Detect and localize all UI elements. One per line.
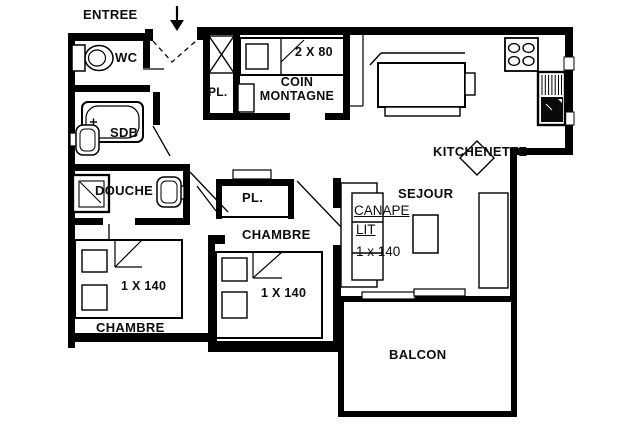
label-lit: LIT xyxy=(356,223,376,237)
label-coin-montagne-line1: COIN xyxy=(250,75,344,89)
label-closet-chambre: PL. xyxy=(242,191,263,204)
wall-chambre-divider-stub xyxy=(208,235,225,244)
label-balcon: BALCON xyxy=(389,348,446,361)
label-coin-montagne-line2: MONTAGNE xyxy=(250,89,344,103)
label-sdb: SDB xyxy=(110,126,138,139)
wall-closet-chambre-left xyxy=(216,179,222,219)
window-kitchen-upper xyxy=(564,57,574,70)
toilet-icon xyxy=(72,45,113,71)
coffee-table xyxy=(413,215,438,253)
sdb-door xyxy=(153,126,170,156)
label-bed-middle: 1 X 140 xyxy=(261,287,306,300)
wall-top-main xyxy=(197,27,573,35)
wall-closet-chambre-top xyxy=(216,179,294,186)
wall-balcon-bottom xyxy=(338,411,517,417)
label-sejour: SEJOUR xyxy=(398,187,453,200)
entry-door-swing xyxy=(153,40,197,62)
wall-sejour-right xyxy=(510,148,517,302)
sliding-door-panel-left xyxy=(362,292,415,299)
kitchen-sink-icon xyxy=(538,72,565,125)
sideboard xyxy=(479,193,508,288)
wall-closet-chambre-bottom-line xyxy=(216,216,294,218)
label-bed-2x80: 2 X 80 xyxy=(295,46,333,59)
wall-douche-bottom-b xyxy=(135,218,190,225)
sliding-door-panel-right xyxy=(414,289,465,296)
label-coin-montagne: COIN MONTAGNE xyxy=(250,75,344,103)
wall-bottom-middle xyxy=(208,341,344,352)
pillow xyxy=(246,44,268,69)
wall-balcon-right xyxy=(511,296,517,417)
chair xyxy=(465,73,475,95)
wall-douche-bottom-a xyxy=(68,218,103,225)
wall-sejour-left-a xyxy=(333,178,341,208)
pillow xyxy=(82,285,107,310)
label-douche: DOUCHE xyxy=(95,184,153,197)
label-canape-1x140: 1 x 140 xyxy=(356,245,400,259)
label-kitchenette: KITCHENETTE xyxy=(433,145,527,158)
closet-chambre-handle xyxy=(233,170,271,179)
wall-chambre-divider xyxy=(208,243,215,341)
douche-sink-icon xyxy=(157,177,184,207)
pillow xyxy=(222,292,247,318)
floor-plan: ENTREE WC SDB DOUCHE PL. COIN MONTAGNE 2… xyxy=(0,0,624,429)
label-bed-left: 1 X 140 xyxy=(121,280,166,293)
pillow xyxy=(82,250,107,272)
entry-arrow-icon xyxy=(170,6,184,31)
wall-wc-bottom xyxy=(68,85,150,92)
label-closet-entree: PL. xyxy=(208,86,228,98)
wall-closet-chambre-right xyxy=(288,179,294,219)
label-chambre-left: CHAMBRE xyxy=(96,321,165,334)
bench-seat xyxy=(385,107,460,116)
closet-entree-icon xyxy=(209,36,234,73)
pillow xyxy=(222,258,247,281)
wall-sdb-right xyxy=(153,92,160,125)
wall-sejour-left-b xyxy=(333,245,341,352)
label-entree: ENTREE xyxy=(83,8,138,21)
douche-door xyxy=(190,172,228,212)
stove-icon xyxy=(505,38,538,71)
floor-plan-drawing xyxy=(0,0,624,429)
label-chambre-middle: CHAMBRE xyxy=(242,228,311,241)
wall-coin-montagne-bottom xyxy=(203,113,290,120)
wall-right-upper xyxy=(565,27,573,155)
label-wc: WC xyxy=(115,51,137,64)
label-canape: CANAPE xyxy=(354,204,410,218)
wall-sdb-bottom xyxy=(68,164,190,171)
wall-wc-right xyxy=(143,33,150,68)
kitchen-table xyxy=(370,53,475,116)
kitchen-zone-line xyxy=(350,30,363,106)
wall-top-left xyxy=(68,33,152,41)
